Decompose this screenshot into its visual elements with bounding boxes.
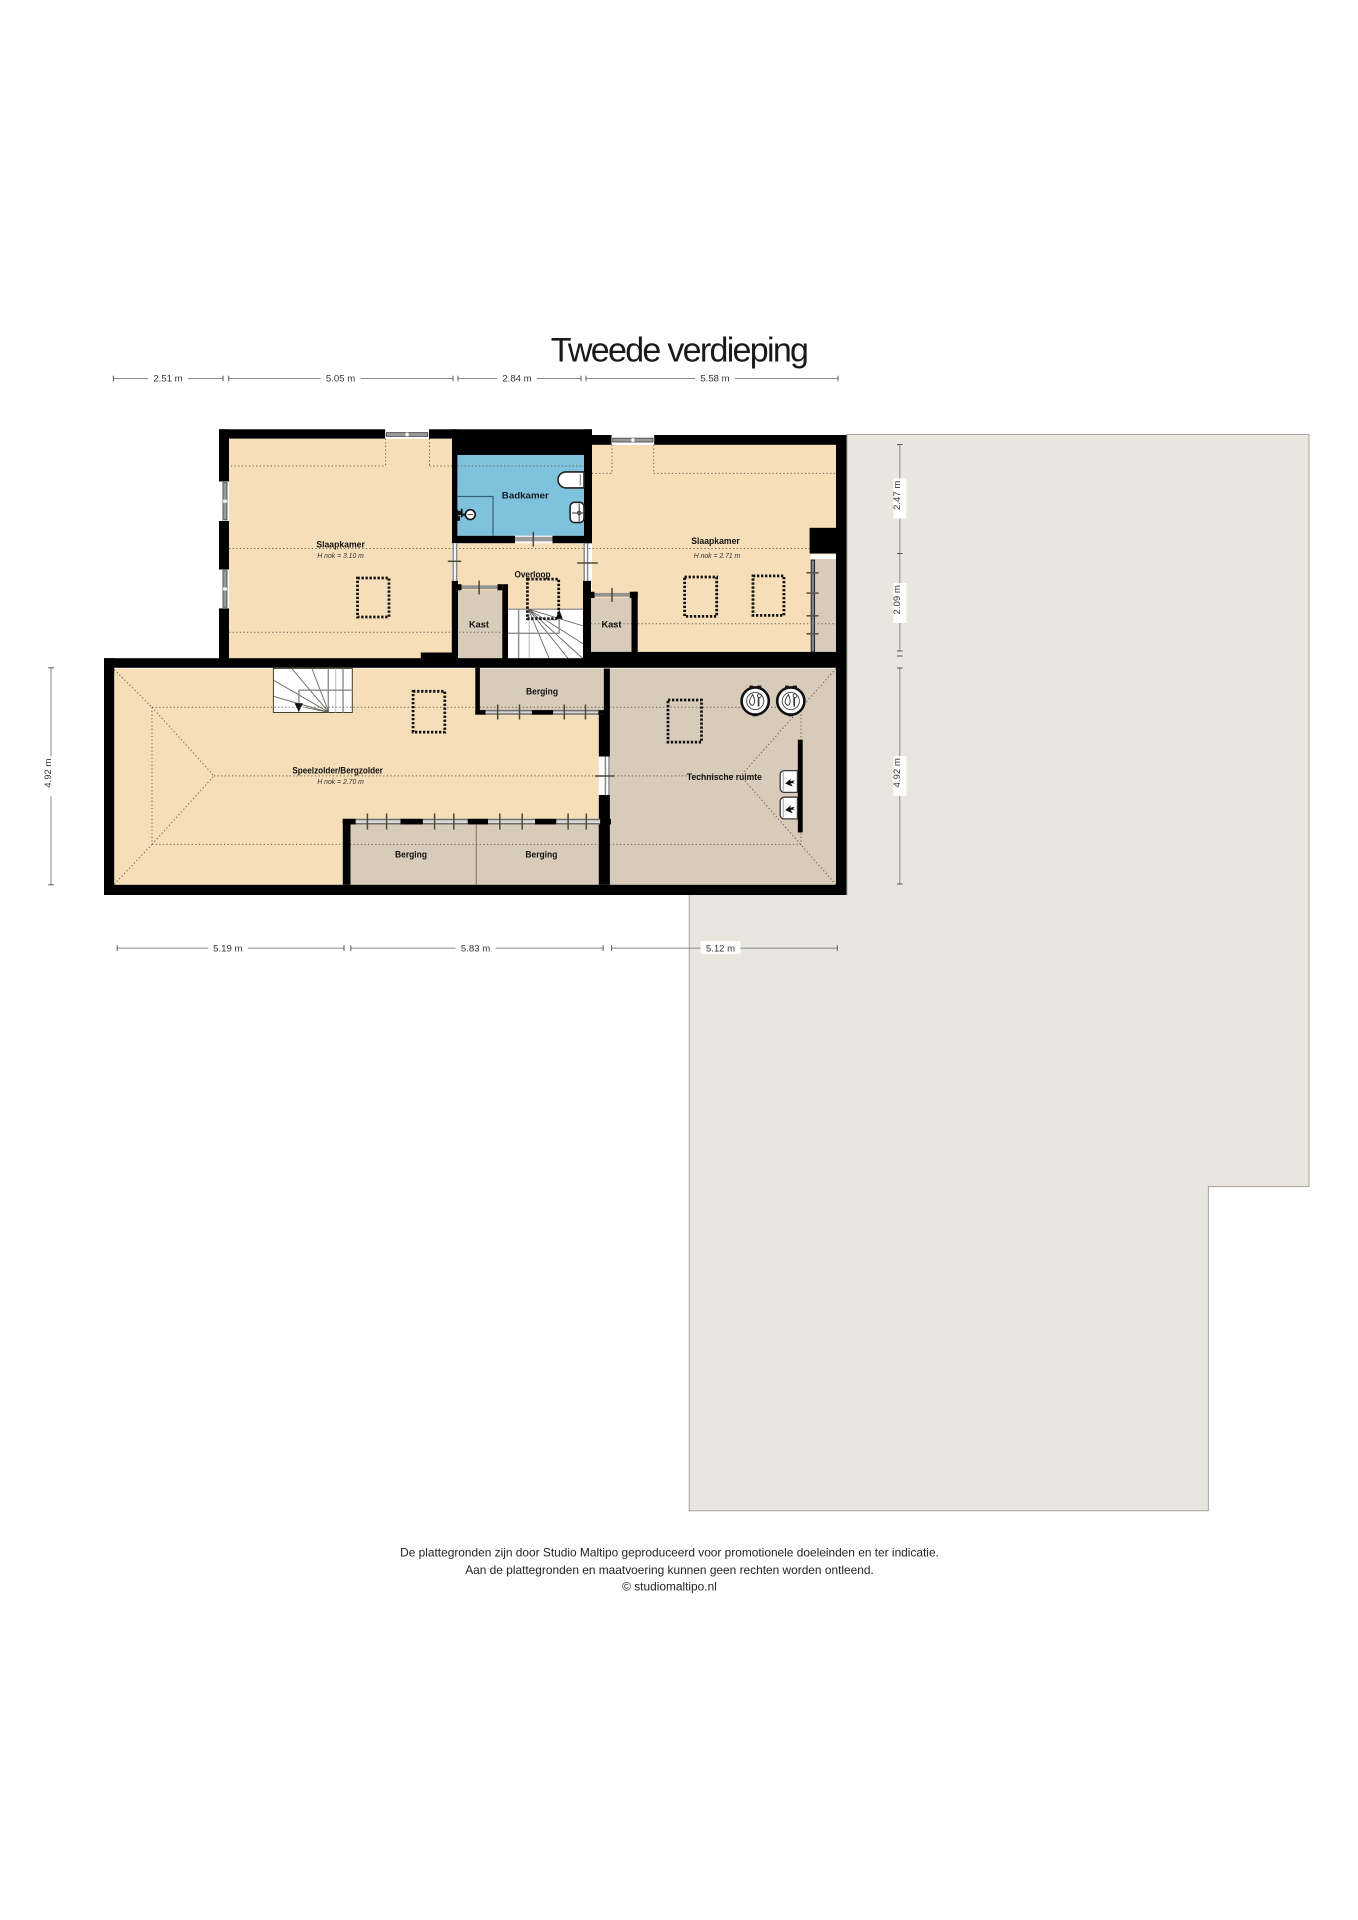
svg-text:© studiomaltipo.nl: © studiomaltipo.nl [622,1580,717,1594]
svg-text:2.84 m: 2.84 m [502,374,531,385]
svg-text:Aan de plattegronden en maatvo: Aan de plattegronden en maatvoering kunn… [465,1563,874,1577]
svg-text:Badkamer: Badkamer [502,490,549,500]
svg-text:Technische ruimte: Technische ruimte [687,772,762,782]
svg-text:Kast: Kast [469,620,489,630]
svg-text:4.92 m: 4.92 m [43,758,54,787]
svg-text:Slaapkamer: Slaapkamer [691,536,740,546]
svg-text:5.12 m: 5.12 m [706,943,735,954]
svg-text:H nok = 2.71 m: H nok = 2.71 m [694,551,741,560]
svg-text:5.58 m: 5.58 m [700,374,729,385]
svg-text:2.09 m: 2.09 m [892,585,903,614]
svg-text:De plattegronden zijn door Stu: De plattegronden zijn door Studio Maltip… [400,1546,939,1560]
svg-text:Berging: Berging [525,850,557,860]
svg-text:Overloop: Overloop [515,570,551,580]
svg-text:Berging: Berging [395,850,427,860]
svg-text:2.47 m: 2.47 m [892,481,903,510]
svg-text:2.51 m: 2.51 m [153,374,182,385]
svg-text:Tweede verdieping: Tweede verdieping [551,332,808,370]
svg-text:H nok = 2.70 m: H nok = 2.70 m [317,777,364,786]
svg-text:4.92 m: 4.92 m [892,758,903,787]
svg-text:Kast: Kast [602,620,622,630]
svg-text:Berging: Berging [526,687,558,697]
svg-text:H nok = 3.10 m: H nok = 3.10 m [317,551,364,560]
svg-text:5.83 m: 5.83 m [461,943,490,954]
svg-text:5.05 m: 5.05 m [326,374,355,385]
svg-text:Slaapkamer: Slaapkamer [316,540,365,550]
svg-text:Speelzolder/Bergzolder: Speelzolder/Bergzolder [292,765,383,775]
svg-text:5.19 m: 5.19 m [213,943,242,954]
